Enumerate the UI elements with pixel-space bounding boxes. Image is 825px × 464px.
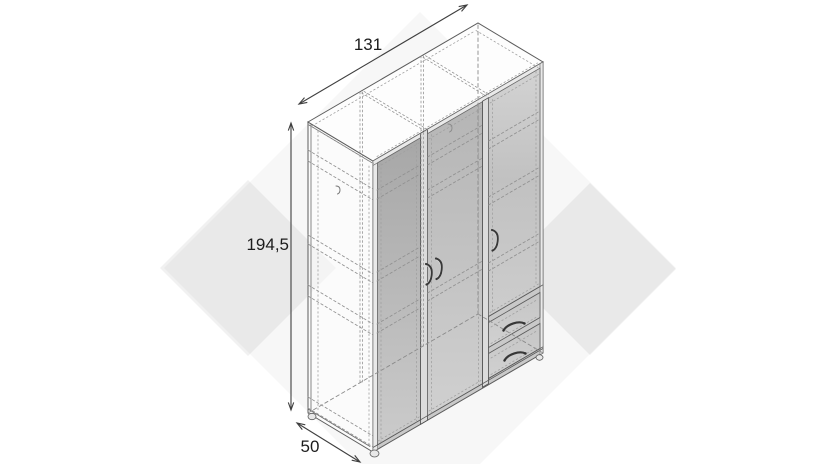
height-label: 194,5 <box>246 235 289 254</box>
door-seam-strip-2 <box>483 98 489 388</box>
door-seam-strip-1 <box>421 129 428 424</box>
depth-label: 50 <box>301 437 320 456</box>
foot-right <box>536 355 543 361</box>
left-door <box>378 138 421 445</box>
right-door <box>489 68 541 316</box>
wardrobe-diagram-svg: 131 194,5 50 <box>0 0 825 464</box>
width-label: 131 <box>354 35 382 54</box>
product-dimension-diagram: 131 194,5 50 <box>0 0 825 464</box>
foot-front <box>370 450 379 457</box>
foot-left <box>308 413 316 419</box>
right-edge-band <box>540 62 543 355</box>
left-edge-band <box>373 163 378 452</box>
